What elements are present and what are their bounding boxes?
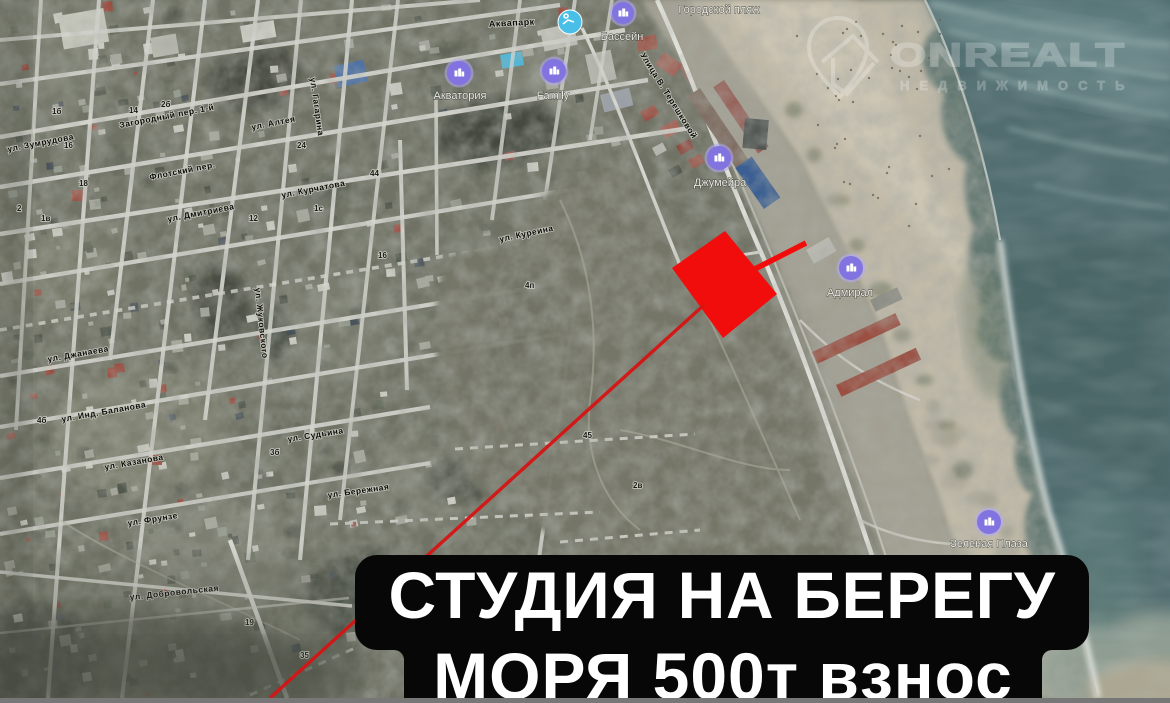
svg-text:16: 16: [378, 251, 387, 260]
svg-text:44: 44: [370, 169, 379, 178]
svg-text:1с: 1с: [314, 204, 323, 213]
svg-text:4б: 4б: [37, 416, 46, 425]
svg-text:1в: 1в: [41, 214, 50, 223]
svg-text:Акватория: Акватория: [434, 90, 487, 102]
svg-text:1б: 1б: [52, 107, 61, 116]
svg-text:Family: Family: [537, 90, 570, 102]
svg-text:2в: 2в: [633, 481, 642, 490]
svg-text:12: 12: [249, 214, 258, 223]
svg-text:Городской пляж: Городской пляж: [678, 4, 760, 16]
svg-text:НЕДВИЖИМОСТЬ: НЕДВИЖИМОСТЬ: [900, 78, 1134, 93]
svg-text:2: 2: [17, 204, 22, 213]
svg-text:45: 45: [583, 431, 592, 440]
svg-text:СТУДИЯ НА БЕРЕГУ: СТУДИЯ НА БЕРЕГУ: [388, 558, 1055, 632]
svg-text:Зеленая Плаза: Зеленая Плаза: [950, 538, 1029, 550]
svg-text:Адмирал: Адмирал: [827, 287, 873, 299]
svg-text:3б: 3б: [270, 448, 279, 457]
svg-text:24: 24: [297, 141, 306, 150]
svg-text:18: 18: [79, 179, 88, 188]
svg-text:МОРЯ 500т взнос: МОРЯ 500т взнос: [433, 639, 1013, 698]
svg-text:Бассейн: Бассейн: [601, 31, 644, 43]
svg-text:ONREALT: ONREALT: [890, 38, 1126, 73]
svg-text:Джумейра: Джумейра: [694, 177, 747, 189]
svg-text:14: 14: [129, 106, 138, 115]
svg-text:16: 16: [64, 141, 73, 150]
svg-text:2б: 2б: [161, 100, 170, 109]
svg-text:4п: 4п: [525, 281, 534, 290]
